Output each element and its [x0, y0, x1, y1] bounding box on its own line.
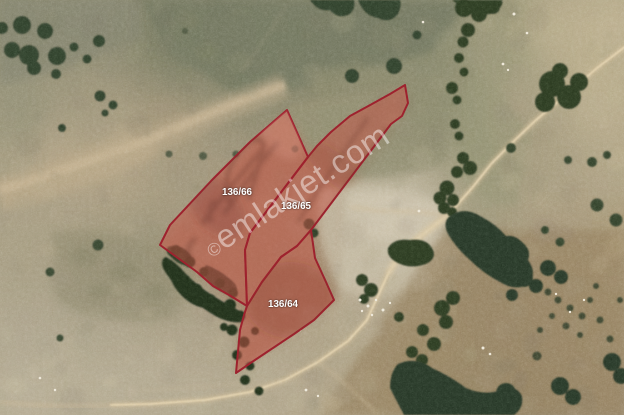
svg-text:136/65: 136/65 [281, 200, 311, 212]
svg-text:136/64: 136/64 [268, 298, 298, 310]
svg-text:136/66: 136/66 [222, 186, 252, 198]
